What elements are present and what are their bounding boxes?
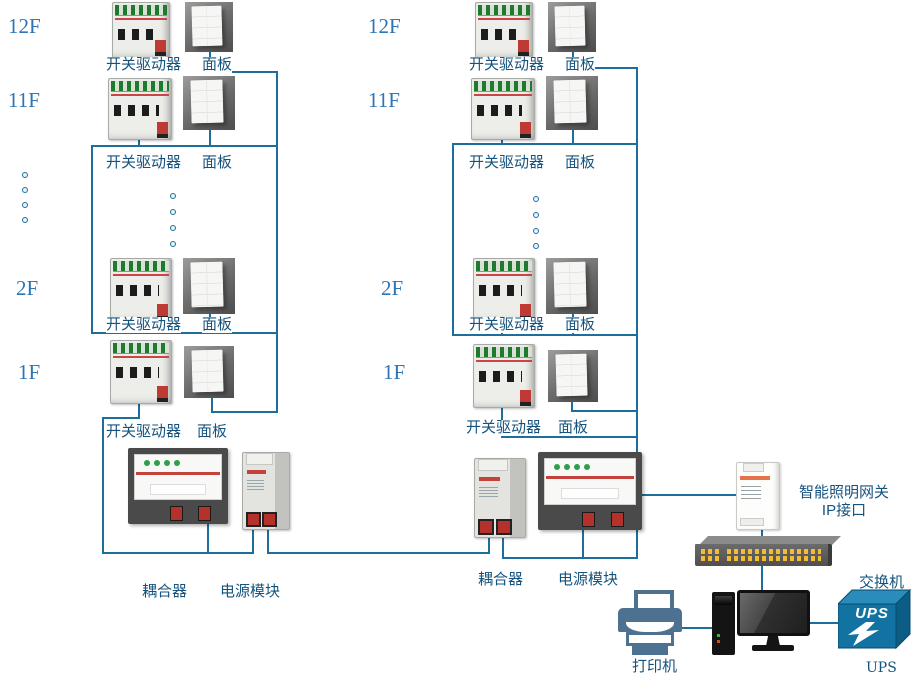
device-marking [247, 478, 264, 491]
red-stripe [136, 472, 220, 475]
connection-line [452, 334, 638, 336]
floor-label-right-2f: 2F [381, 277, 403, 299]
red-stripe [111, 94, 169, 96]
device-marking [150, 484, 206, 495]
connection-line [582, 530, 584, 558]
panel-device [546, 76, 598, 130]
connection-line [102, 417, 104, 554]
terminal-strip [476, 261, 532, 272]
switch-driver-device [108, 78, 172, 140]
panel-device [184, 346, 234, 398]
red-stripe [247, 470, 266, 474]
connection-line [211, 411, 278, 413]
connector-row [481, 29, 520, 40]
panel-label: 面板 [558, 420, 588, 436]
bus-connector [198, 506, 211, 521]
coupler-device [474, 458, 526, 538]
gateway-label-line1: 智能照明网关 [786, 485, 902, 501]
panel-face [192, 6, 223, 47]
bus-connector [170, 506, 183, 521]
monitor-base [752, 645, 794, 651]
connector-row [114, 105, 159, 116]
terminal-strip [115, 5, 167, 16]
power-led [717, 634, 720, 637]
bus-connector [157, 386, 168, 402]
ellipsis-dot [170, 241, 176, 247]
gateway-label-line2: IP接口 [786, 503, 902, 519]
coupler-label: 耦合器 [142, 584, 187, 600]
panel-label: 面板 [197, 424, 227, 440]
floor-label-right-11f: 11F [368, 89, 400, 111]
connection-line [91, 145, 278, 147]
terminal-strip [113, 343, 169, 354]
floor-label-right-12f: 12F [368, 15, 401, 37]
switch-driver-label: 开关驱动器 [106, 57, 181, 73]
red-stripe [476, 274, 532, 276]
switch-driver-device [473, 258, 535, 322]
bus-connector [246, 512, 261, 527]
led-dots [554, 464, 560, 470]
ellipsis-dot [533, 212, 539, 218]
terminal-strip [474, 81, 532, 92]
red-stripe [113, 274, 169, 276]
switch-driver-device [473, 344, 535, 408]
ellipsis-dot [533, 228, 539, 234]
panel-label: 面板 [565, 317, 595, 333]
hdd-led [717, 640, 720, 643]
device-marking [741, 483, 760, 501]
panel-device [183, 258, 235, 314]
connection-line [452, 143, 454, 335]
switch-driver-label: 开关驱动器 [106, 424, 181, 440]
floor-label-left-12f: 12F [8, 15, 41, 37]
bus-connector [520, 390, 531, 406]
ups-label: UPS [866, 660, 897, 676]
switch-ports [701, 549, 721, 554]
connector-row [118, 29, 157, 40]
connector-row [116, 367, 159, 378]
bus-connector [611, 512, 624, 527]
connection-line [572, 130, 574, 144]
floor-label-left-2f: 2F [16, 277, 38, 299]
switch-driver-label: 开关驱动器 [106, 317, 181, 333]
connection-line [211, 398, 213, 412]
bus-connector [155, 40, 166, 56]
device-marking [561, 488, 619, 499]
floor-label-right-1f: 1F [383, 361, 405, 383]
connection-line [102, 552, 254, 554]
panel-face [553, 262, 586, 308]
switch-ports [727, 556, 821, 561]
device-cap [478, 459, 508, 471]
panel-face [555, 6, 586, 47]
connector-row [479, 285, 522, 296]
connection-line [682, 627, 712, 629]
printer-base [632, 646, 668, 655]
connection-line [571, 410, 638, 412]
monitor-screen [740, 593, 807, 633]
connection-line [91, 145, 93, 333]
panel-label: 面板 [565, 57, 595, 73]
connector-row [116, 285, 159, 296]
connection-line [502, 536, 504, 559]
connection-line [761, 566, 763, 591]
switch-driver-label: 开关驱动器 [106, 155, 181, 171]
ellipsis-dot [22, 187, 28, 193]
coupler-label: 耦合器 [478, 572, 523, 588]
ellipsis-dot [170, 209, 176, 215]
switch-driver-label: 开关驱动器 [469, 57, 544, 73]
ellipsis-dot [170, 225, 176, 231]
red-stripe [476, 360, 532, 362]
led-dots [144, 460, 150, 466]
connection-line [209, 130, 211, 146]
power-module-device [242, 452, 290, 530]
panel-face [190, 80, 223, 124]
switch-driver-device [471, 78, 535, 140]
panel-label: 面板 [202, 57, 232, 73]
switch-driver-device [112, 2, 170, 58]
computer-tower [712, 592, 735, 655]
panel-device [548, 350, 598, 402]
coupler-device [128, 448, 228, 524]
terminal-strip [478, 5, 530, 16]
terminal-strip [476, 347, 532, 358]
ellipsis-dot [533, 196, 539, 202]
connector-row [477, 105, 522, 116]
bus-connector [518, 40, 529, 56]
panel-face [555, 354, 587, 396]
bus-connector [262, 512, 277, 527]
switch-ports [701, 556, 721, 561]
ellipsis-dot [22, 217, 28, 223]
power-module-label: 电源模块 [220, 584, 280, 600]
lighting-system-topology-diagram: 12F 11F 2F 1F 12F 11F 2F 1F [0, 0, 920, 687]
bus-connector [478, 519, 494, 535]
device-cap [743, 463, 764, 472]
printer-tray [626, 632, 674, 646]
panel-device [548, 2, 596, 52]
device-marking [479, 485, 498, 498]
floor-label-left-1f: 1F [18, 361, 40, 383]
ellipsis-dot [170, 193, 176, 199]
network-switch-device [695, 544, 832, 566]
bus-connector [582, 512, 595, 527]
red-stripe [115, 18, 167, 20]
red-stripe [113, 356, 169, 358]
drive-slot [715, 596, 732, 605]
panel-face [190, 262, 223, 308]
terminal-strip [111, 81, 169, 92]
ellipsis-dot [533, 243, 539, 249]
panel-label: 面板 [565, 155, 595, 171]
connection-line [452, 143, 638, 145]
panel-label: 面板 [202, 155, 232, 171]
red-stripe [546, 476, 634, 479]
connection-line [502, 557, 638, 559]
panel-label: 面板 [202, 317, 232, 333]
red-stripe [479, 477, 500, 481]
power-module-device [538, 452, 642, 530]
power-module-label: 电源模块 [558, 572, 618, 588]
panel-face [553, 80, 586, 124]
device-cap [246, 453, 273, 465]
connection-line [102, 417, 140, 419]
backbone-line [267, 552, 489, 554]
red-stripe [478, 18, 530, 20]
ups-box-text: UPS [850, 605, 894, 622]
orange-stripe [740, 476, 770, 480]
switch-driver-device [110, 340, 172, 404]
connection-line [637, 494, 736, 496]
floor-label-left-11f: 11F [8, 89, 40, 111]
red-stripe [474, 94, 532, 96]
connector-row [479, 371, 522, 382]
switch-driver-device [475, 2, 533, 58]
ellipsis-dot [22, 172, 28, 178]
panel-face [191, 350, 223, 392]
switch-driver-device [110, 258, 172, 322]
panel-device [183, 76, 235, 130]
bus-connector [520, 122, 531, 138]
connection-line [252, 528, 254, 553]
connection-line [276, 71, 278, 412]
switch-driver-label: 开关驱动器 [469, 317, 544, 333]
panel-device [185, 2, 233, 52]
connection-line [207, 524, 209, 553]
switch-driver-label: 开关驱动器 [469, 155, 544, 171]
terminal-strip [113, 261, 169, 272]
connection-line [488, 536, 490, 554]
bus-connector [157, 122, 168, 138]
device-foot [740, 518, 764, 526]
switch-driver-label: 开关驱动器 [466, 420, 541, 436]
gateway-device [736, 462, 780, 530]
computer-monitor [737, 590, 810, 636]
connection-line [501, 436, 638, 438]
ellipsis-dot [22, 202, 28, 208]
panel-device [546, 258, 598, 314]
printer-label: 打印机 [632, 659, 677, 675]
connection-line [267, 528, 269, 553]
bus-connector [496, 519, 512, 535]
switch-ports [727, 549, 821, 554]
